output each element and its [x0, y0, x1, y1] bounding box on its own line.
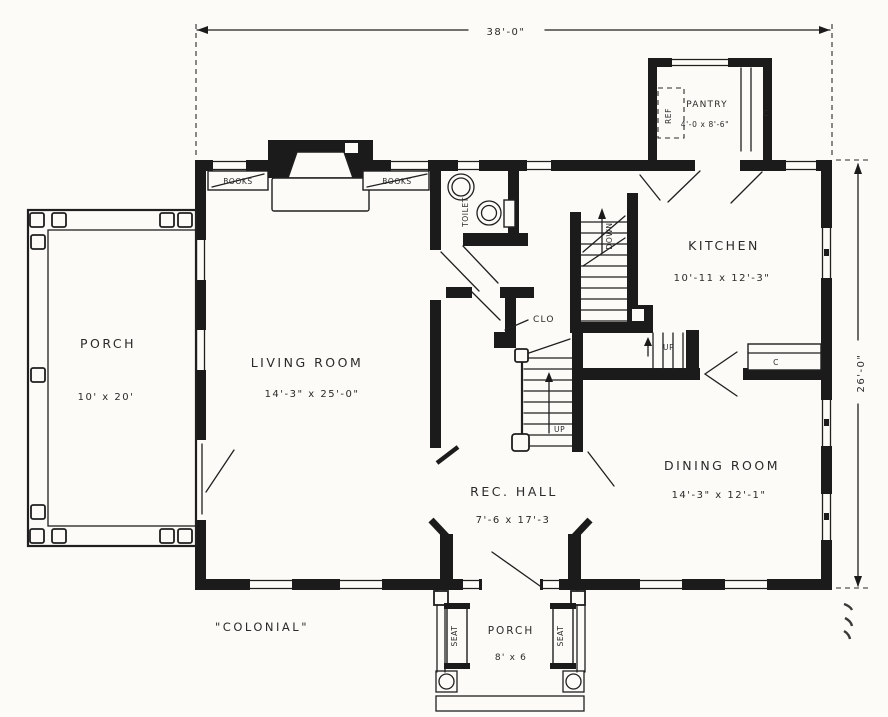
kitchen-name: KITCHEN — [688, 238, 760, 253]
pantry-cupboard — [741, 68, 751, 151]
porch-seat-right: SEAT — [550, 603, 576, 669]
toilet-room: TOILET CLO — [448, 174, 555, 325]
books-left-label: BOOKS — [223, 177, 253, 186]
dimension-top: 38'-0" — [196, 24, 832, 158]
living-room-size: 14'-3" x 25'-0" — [265, 389, 360, 400]
pantry-window — [672, 58, 728, 68]
stairs-up-main-label: UP — [554, 425, 565, 434]
room-labels: LIVING ROOM 14'-3" x 25'-0" REC. HALL 7'… — [215, 238, 780, 634]
pantry-cupboard-label: C — [763, 109, 769, 118]
dimension-right: 26'-0" — [836, 160, 872, 588]
dimension-depth-label: 26'-0" — [856, 353, 867, 392]
stairs-main: UP — [512, 339, 572, 451]
refrigerator-label: REF — [664, 108, 673, 124]
dining-room-size: 14'-3" x 12'-1" — [672, 490, 767, 501]
plan-style-label: "COLONIAL" — [215, 620, 309, 634]
toilet-label: TOILET — [461, 197, 470, 228]
seat-left-label: SEAT — [450, 625, 459, 646]
side-porch-name: PORCH — [80, 336, 136, 351]
kitchen-size: 10'-11 x 12'-3" — [674, 273, 771, 284]
floor-plan-sheet: 38'-0" 26'-0" REF C PANTRY 4'-0 x 8'-6" — [0, 0, 888, 717]
stairs-down-label: DOWN — [605, 222, 614, 249]
pantry-name: PANTRY — [686, 100, 728, 110]
closet-label: CLO — [533, 315, 555, 325]
side-porch-size: 10' x 20' — [78, 392, 135, 403]
dimension-width-label: 38'-0" — [486, 27, 525, 38]
hearth — [272, 178, 369, 211]
porch-step — [436, 696, 584, 711]
newel-post-bottom — [512, 434, 529, 451]
kitchen-counter: C — [748, 344, 821, 370]
living-room-name: LIVING ROOM — [251, 355, 364, 370]
kitchen-counter-label: C — [773, 358, 779, 367]
front-porch-name: PORCH — [488, 625, 535, 637]
fireplace — [268, 140, 373, 211]
books-right-label: BOOKS — [382, 177, 412, 186]
stairs-up-back-label: UP — [663, 343, 674, 352]
seat-right-label: SEAT — [556, 625, 565, 646]
rec-hall-name: REC. HALL — [470, 484, 558, 499]
front-porch-size: 8' x 6 — [495, 653, 527, 663]
page-edge-marks — [844, 604, 852, 639]
front-porch: SEAT SEAT PORCH 8' x 6 — [434, 590, 585, 711]
porch-seat-left: SEAT — [444, 603, 470, 669]
side-porch: PORCH 10' x 20' — [28, 210, 196, 546]
toilet-fixture — [477, 201, 501, 225]
pantry-size: 4'-0 x 8'-6" — [681, 120, 729, 129]
porch-posts — [30, 213, 192, 543]
dining-room-name: DINING ROOM — [664, 458, 780, 473]
newel-post-top — [515, 349, 528, 362]
floor-plan-drawing: 38'-0" 26'-0" REF C PANTRY 4'-0 x 8'-6" — [0, 0, 888, 717]
pantry-walls: REF C PANTRY 4'-0 x 8'-6" — [648, 58, 772, 161]
rec-hall-size: 7'-6 x 17'-3 — [476, 515, 551, 526]
